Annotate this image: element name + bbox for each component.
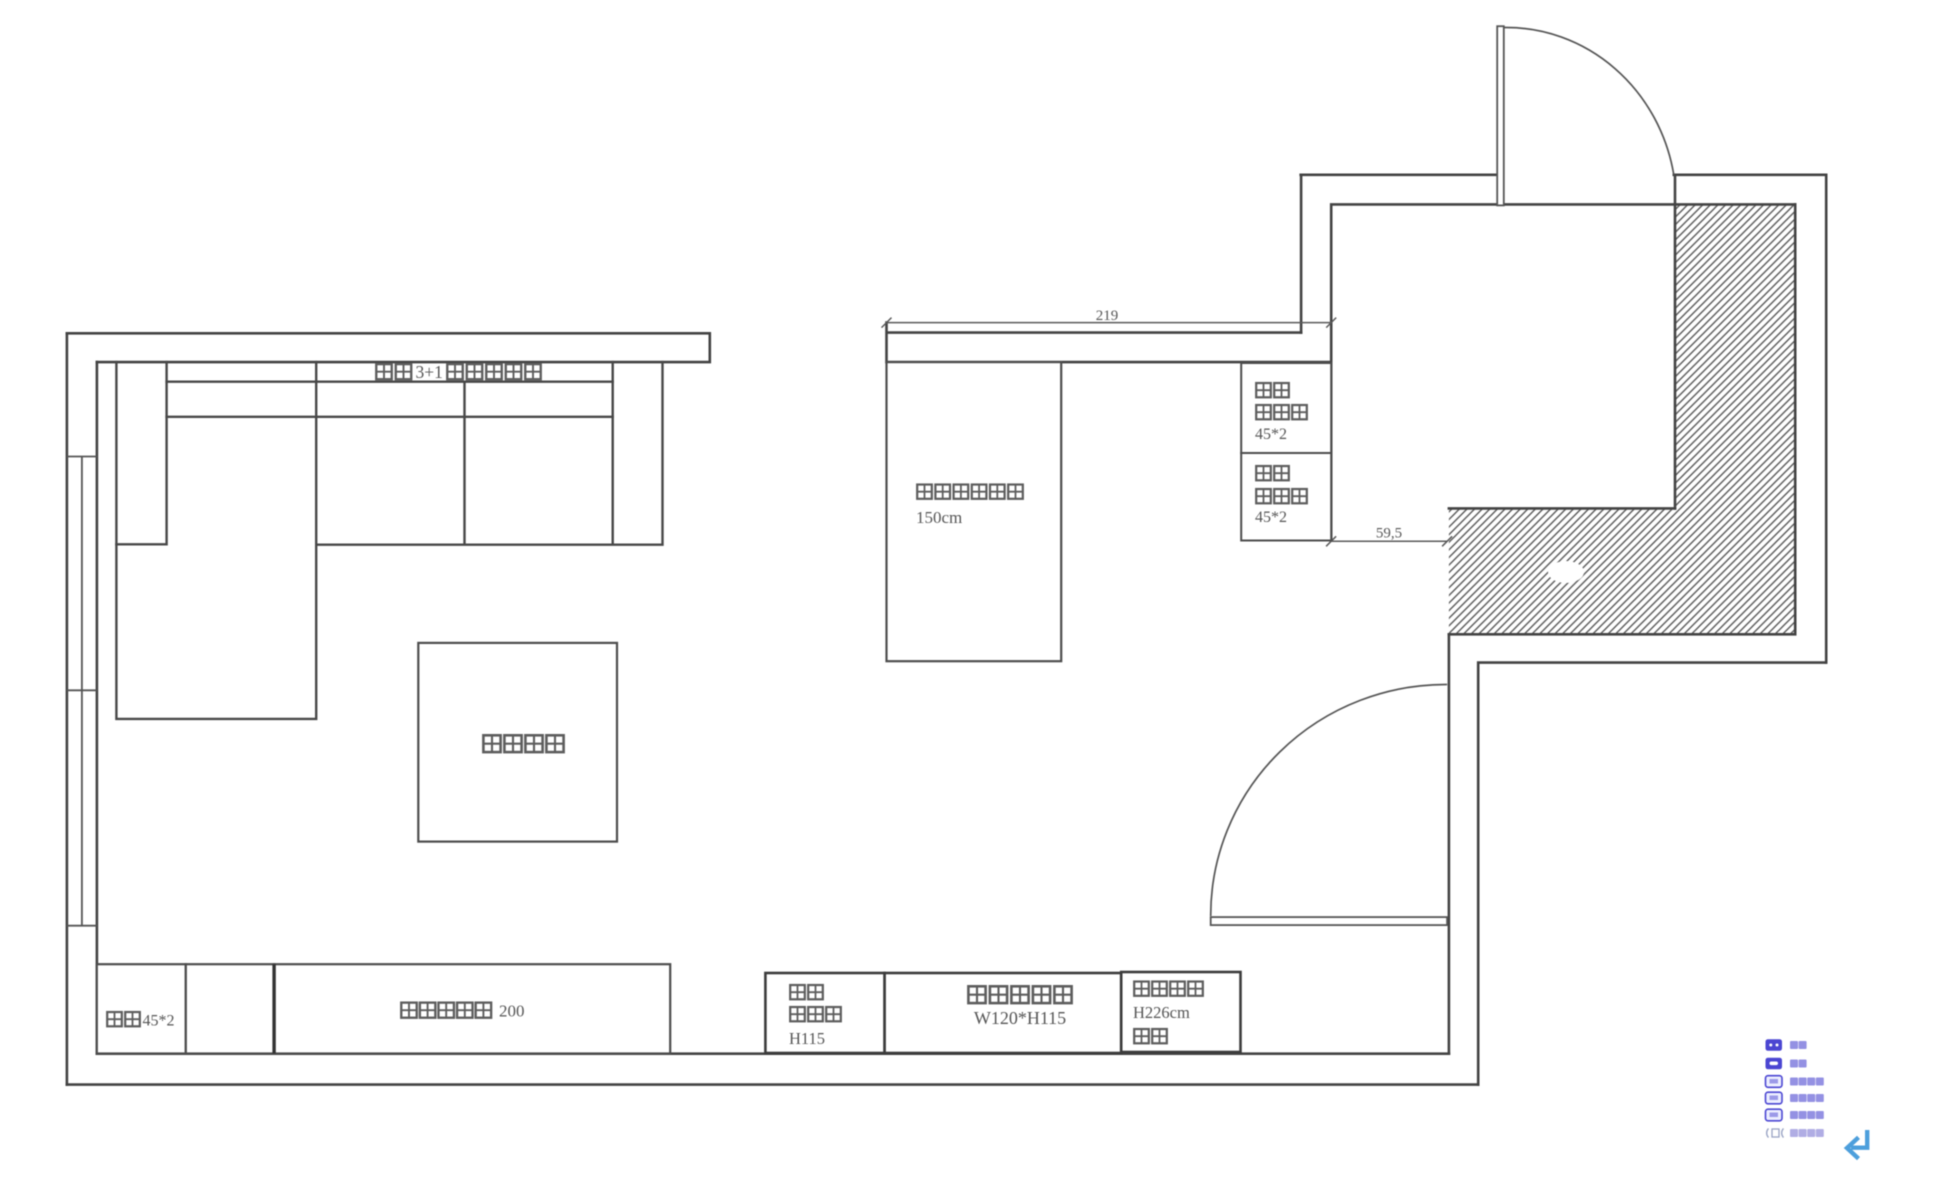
svg-text:200: 200 <box>499 1002 525 1021</box>
svg-text:219: 219 <box>1096 308 1119 324</box>
svg-text:H115: H115 <box>789 1029 825 1048</box>
svg-text:150cm: 150cm <box>916 508 962 527</box>
svg-text:W120*H115: W120*H115 <box>974 1008 1066 1028</box>
svg-text:59,5: 59,5 <box>1376 526 1402 542</box>
svg-text:H226cm: H226cm <box>1133 1003 1190 1022</box>
svg-text:45*2: 45*2 <box>1255 509 1287 526</box>
svg-text:45*2: 45*2 <box>1255 426 1287 443</box>
svg-text:45*2: 45*2 <box>143 1013 175 1030</box>
svg-text:3+1: 3+1 <box>416 362 443 382</box>
